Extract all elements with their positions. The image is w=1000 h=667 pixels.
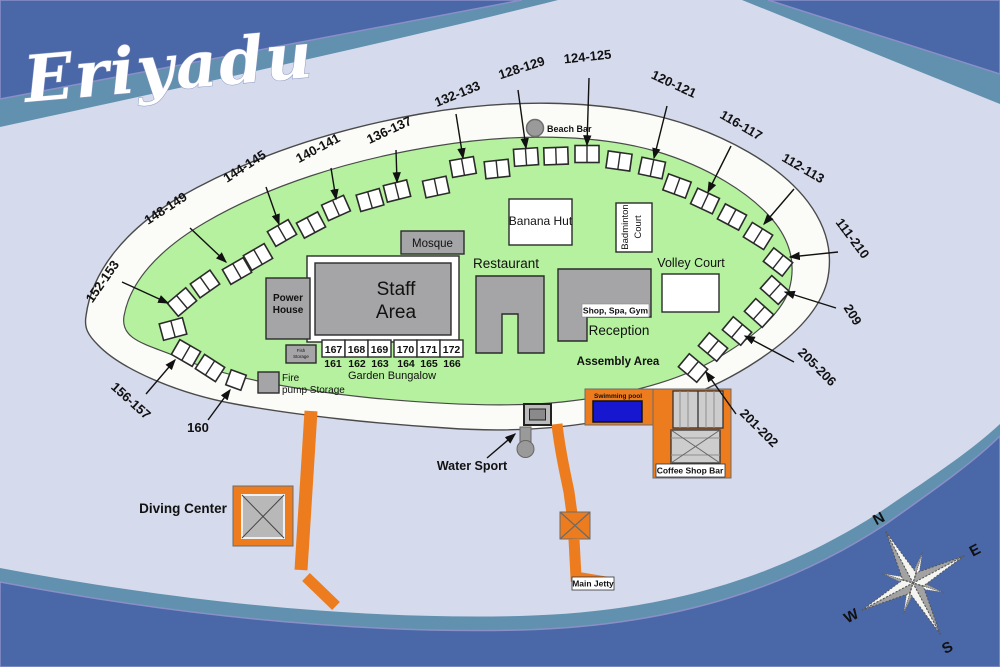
garden-room-number: 171 [420,344,438,356]
assembly-area-label: Assembly Area [577,356,660,368]
fire-pump-building [258,372,279,393]
staff-area-label-2: Area [376,302,417,323]
coffee-shop-bar-label: Coffee Shop Bar [657,466,724,476]
garden-room-number: 166 [443,358,461,370]
restaurant-label: Restaurant [473,256,539,271]
garden-room-number: 172 [443,344,461,356]
bungalow-pair-icon [484,159,510,178]
volley-court-label: Volley Court [657,256,725,270]
beach-bar-label: Beach Bar [547,124,592,134]
callout-arrow [396,150,397,182]
garden-room-number: 168 [348,344,366,356]
shop-spa-gym-label: Shop, Spa, Gym [583,306,649,316]
fire-pump-label-1: Fire [282,373,300,384]
power-house-label-1: Power [273,293,303,304]
resort-map: Diving Center Main Jetty Swimming pool C… [0,0,1000,667]
badminton-label-1: Badminton [620,204,631,249]
garden-room-number: 170 [397,344,415,356]
fish-storage-label-2: Storage [293,354,309,359]
room-number-label: 160 [187,420,209,435]
diving-center-label: Diving Center [139,501,228,516]
staff-area-label-1: Staff [377,279,416,300]
garden-room-number: 164 [397,358,415,370]
swimming-pool-label: Swimming pool [594,393,642,400]
garden-bungalow-label: Garden Bungalow [348,370,436,382]
water-sport-platform [517,441,534,458]
bungalow-pair-icon [606,151,632,171]
volley-court [662,274,719,312]
bungalow-pair-icon [575,146,599,163]
bungalow-pair-icon [450,157,477,178]
water-sport-hut-roof [530,409,546,420]
bungalow-pair-icon [513,148,538,167]
garden-room-number: 163 [371,358,389,370]
swimming-pool [593,401,642,422]
main-jetty-label: Main Jetty [572,579,614,589]
mosque-label: Mosque [412,238,453,250]
bungalow-pair-icon [544,147,569,165]
garden-room-number: 162 [348,358,366,370]
fish-storage-label-1: Fish [297,348,306,353]
map-canvas: Diving Center Main Jetty Swimming pool C… [0,0,1000,667]
garden-room-number: 167 [325,344,343,356]
garden-room-number: 161 [324,358,342,370]
badminton-label-2: Court [633,215,644,239]
reception-label: Reception [589,323,650,338]
beach-bar-icon [527,120,544,137]
power-house-label-2: House [273,305,304,316]
banana-hut-label: Banana Hut [509,214,573,228]
water-sport-label: Water Sport [437,459,508,473]
fire-pump-label-2: pump Storage [282,385,345,396]
garden-room-number: 169 [371,344,389,356]
garden-room-number: 165 [420,358,438,370]
